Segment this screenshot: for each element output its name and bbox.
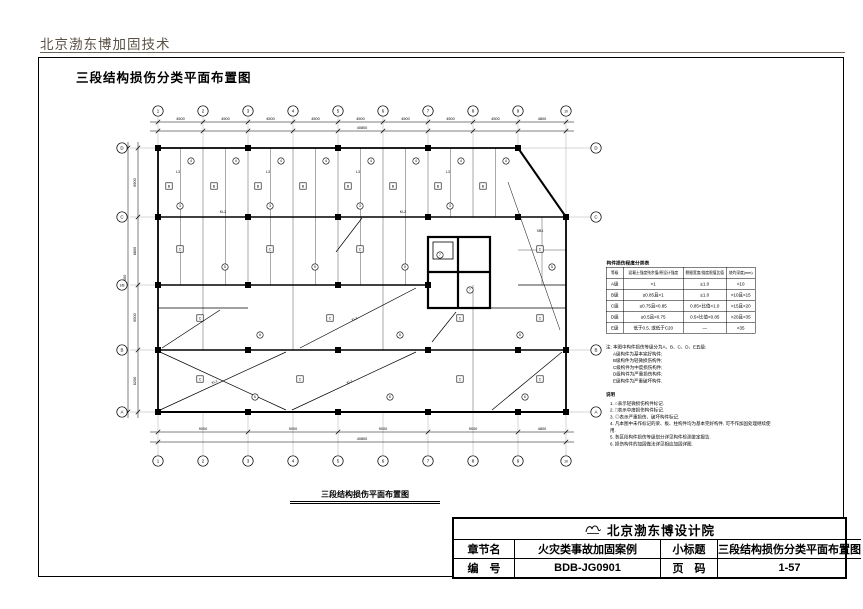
svg-text:4: 4: [460, 159, 462, 163]
svg-text:XL1: XL1: [346, 379, 353, 385]
damage-table-cell: >1: [623, 278, 683, 289]
damage-table-cell: E级: [606, 322, 623, 333]
svg-text:6200: 6200: [133, 377, 137, 385]
svg-text:4: 4: [235, 159, 237, 163]
svg-text:D: D: [594, 146, 597, 151]
svg-text:5: 5: [224, 265, 226, 269]
svg-text:4500: 4500: [356, 117, 364, 121]
svg-text:C: C: [269, 247, 272, 251]
damage-table-cell: >20且<35: [726, 311, 755, 322]
damage-table-row: D级≥0.5且<0.750.5<比值<0.85>20且<35: [606, 311, 755, 322]
svg-text:9000: 9000: [379, 427, 387, 431]
page-value: 1-57: [717, 558, 861, 577]
title-block-grid: 章节名 火灾类事故加固案例 小标题 三段结构损伤分类平面布置图 编 号 BDB-…: [454, 539, 845, 577]
number-label: 编 号: [454, 558, 514, 577]
svg-text:B: B: [121, 348, 124, 353]
svg-text:4: 4: [325, 159, 327, 163]
damage-table-cell: ≥0.5且<0.75: [623, 311, 683, 322]
sheet-title: 三段结构损伤分类平面布置图: [76, 67, 252, 86]
notes-block: 注: 本图中构件损伤等级分为A、B、C、D、E五级:A级构件为基本完好构件;B级…: [606, 344, 771, 448]
svg-text:5: 5: [551, 265, 553, 269]
svg-text:XB1: XB1: [537, 229, 544, 233]
svg-text:C: C: [329, 316, 332, 320]
note-line: B级构件为轻微损伤构件;: [606, 358, 771, 365]
svg-text:1/B: 1/B: [119, 284, 125, 288]
damage-classification-table-block: 构件损伤程度分类表 等级混凝土强度残余值/原设计强度裂缝宽度/挠度限值比值烧灼深…: [606, 259, 756, 334]
svg-text:4800: 4800: [538, 427, 546, 431]
svg-text:40800: 40800: [357, 126, 368, 130]
svg-text:4500: 4500: [401, 117, 409, 121]
company-name: 北京渤东博设计院: [607, 520, 715, 539]
damage-table-header-row: 等级混凝土强度残余值/原设计强度裂缝宽度/挠度限值比值烧灼深度(mm): [606, 267, 755, 278]
damage-table-header-cell: 等级: [606, 267, 623, 278]
svg-text:C: C: [539, 247, 542, 251]
svg-text:7: 7: [439, 253, 441, 257]
subtitle-label: 小标题: [660, 539, 717, 558]
svg-text:40800: 40800: [357, 437, 368, 441]
legend-title: 说明: [606, 392, 771, 399]
svg-text:3: 3: [269, 204, 271, 208]
svg-text:3: 3: [449, 204, 451, 208]
damage-table-cell: C级: [606, 300, 623, 311]
grade-notes: 注: 本图中构件损伤等级分为A、B、C、D、E五级:A级构件为基本完好构件;B级…: [606, 344, 771, 385]
svg-text:5: 5: [404, 265, 406, 269]
damage-table-header-cell: 烧灼深度(mm): [726, 267, 755, 278]
svg-text:6500: 6500: [133, 313, 137, 321]
legend-item: 6. 损伤构件的加固做法详见相应加固详图.: [606, 441, 771, 448]
svg-text:6800: 6800: [133, 247, 137, 255]
legend-item: 4. 凡本图中未作标记的梁、板、柱构件均为基本完好构件, 可不作加固处理继续使用…: [606, 421, 771, 435]
damage-table-cell: ≥1.0: [683, 289, 726, 300]
legend-items: 1. ○表示轻微损伤构件标记.2. □表示中度损伤构件标记.3. ◎表示严重损伤…: [606, 400, 771, 447]
damage-table-header-cell: 裂缝宽度/挠度限值比值: [683, 267, 726, 278]
svg-text:C: C: [299, 377, 302, 381]
svg-text:9000: 9000: [289, 427, 297, 431]
svg-text:4500: 4500: [221, 117, 229, 121]
drawing-sheet-page: 北京渤东博加固技术 三段结构损伤分类平面布置图 4500450045004500…: [0, 0, 863, 609]
damage-table-row: A级>1≥1.0<10: [606, 278, 755, 289]
title-block: 北京渤东博设计院 章节名 火灾类事故加固案例 小标题 三段结构损伤分类平面布置图…: [452, 517, 847, 579]
svg-text:4: 4: [190, 159, 192, 163]
svg-text:6: 6: [254, 395, 256, 399]
svg-text:10: 10: [564, 110, 568, 114]
svg-text:L3: L3: [446, 170, 450, 174]
damage-table-cell: ≥0.75且<0.85: [623, 300, 683, 311]
svg-text:L3: L3: [266, 170, 270, 174]
damage-table-cell: 0.85<比值<1.0: [683, 300, 726, 311]
svg-text:4: 4: [505, 159, 507, 163]
svg-text:B: B: [595, 348, 598, 353]
svg-text:4: 4: [280, 159, 282, 163]
damage-table-head: 等级混凝土强度残余值/原设计强度裂缝宽度/挠度限值比值烧灼深度(mm): [606, 267, 755, 278]
svg-text:D: D: [120, 146, 123, 151]
damage-table-row: C级≥0.75且<0.850.85<比值<1.0>15且<20: [606, 300, 755, 311]
plan-caption: 三段结构损伤平面布置图: [290, 489, 440, 504]
damage-table-cell: A级: [606, 278, 623, 289]
svg-text:XL1: XL1: [211, 379, 218, 385]
svg-text:4500: 4500: [266, 117, 274, 121]
damage-table-cell: B级: [606, 289, 623, 300]
svg-text:C: C: [179, 247, 182, 251]
legend-item: 3. ◎表示严重损伤、破坏构件标记.: [606, 414, 771, 421]
svg-text:A: A: [121, 410, 124, 415]
svg-text:C: C: [539, 316, 542, 320]
damage-table: 等级混凝土强度残余值/原设计强度裂缝宽度/挠度限值比值烧灼深度(mm) A级>1…: [606, 267, 756, 334]
svg-text:7: 7: [469, 288, 471, 292]
svg-text:L3: L3: [176, 170, 180, 174]
svg-text:4500: 4500: [176, 117, 184, 121]
legend-item: 1. ○表示轻微损伤构件标记.: [606, 400, 771, 407]
note-line: A级构件为基本完好构件;: [606, 351, 771, 358]
svg-text:6: 6: [519, 333, 521, 337]
svg-text:C: C: [199, 316, 202, 320]
svg-text:5: 5: [314, 265, 316, 269]
svg-text:3: 3: [179, 204, 181, 208]
svg-text:4500: 4500: [446, 117, 454, 121]
damage-table-cell: >10且<15: [726, 289, 755, 300]
damage-table-row: B级≥0.85且<1≥1.0>10且<15: [606, 289, 755, 300]
damage-table-title: 构件损伤程度分类表: [607, 259, 757, 266]
svg-text:9000: 9000: [199, 427, 207, 431]
note-line: 注: 本图中构件损伤等级分为A、B、C、D、E五级:: [606, 344, 771, 351]
svg-text:6: 6: [389, 395, 391, 399]
svg-text:3: 3: [359, 204, 361, 208]
svg-text:C: C: [459, 316, 462, 320]
damage-table-cell: >35: [726, 322, 755, 333]
svg-text:9000: 9000: [469, 427, 477, 431]
svg-text:C: C: [120, 215, 123, 220]
svg-text:C: C: [459, 377, 462, 381]
legend-item: 2. □表示中度损伤构件标记.: [606, 407, 771, 414]
damage-table-cell: 0.5<比值<0.85: [683, 311, 726, 322]
svg-text:KL2: KL2: [220, 210, 226, 214]
svg-text:A: A: [595, 410, 598, 415]
damage-table-body: A级>1≥1.0<10B级≥0.85且<1≥1.0>10且<15C级≥0.75且…: [606, 278, 755, 333]
svg-text:6: 6: [524, 395, 526, 399]
damage-table-header-cell: 混凝土强度残余值/原设计强度: [623, 267, 683, 278]
svg-text:6900: 6900: [133, 178, 137, 186]
legend-item: 5. 各区段构件损伤等级划分详见构件检测鉴定报告.: [606, 434, 771, 441]
svg-text:4: 4: [415, 159, 417, 163]
note-line: C级构件为中度损伤构件;: [606, 364, 771, 371]
number-value: BDB-JG0901: [514, 558, 660, 577]
damage-table-cell: ≥0.85且<1: [623, 289, 683, 300]
svg-text:4800: 4800: [538, 117, 546, 121]
svg-text:4500: 4500: [311, 117, 319, 121]
damage-table-row: E级低于0.5, 或低于C20—>35: [606, 322, 755, 333]
svg-text:C: C: [594, 215, 597, 220]
svg-text:10: 10: [564, 460, 568, 464]
svg-text:KL2: KL2: [400, 210, 406, 214]
damage-table-cell: >15且<20: [726, 300, 755, 311]
page-label: 页 码: [660, 558, 717, 577]
damage-table-cell: ≥1.0: [683, 278, 726, 289]
header-rule: [40, 52, 845, 53]
damage-table-cell: —: [683, 322, 726, 333]
svg-text:C: C: [359, 247, 362, 251]
note-line: D级构件为严重损伤构件;: [606, 371, 771, 378]
note-line: E级构件为严重破坏构件.: [606, 378, 771, 385]
damage-table-cell: D级: [606, 311, 623, 322]
svg-text:L3: L3: [356, 170, 360, 174]
svg-text:4: 4: [370, 159, 372, 163]
floor-plan-drawing: 4500450045004500450045004500450048004080…: [95, 100, 625, 510]
svg-text:6: 6: [259, 333, 261, 337]
design-institute-logo-icon: [584, 523, 602, 535]
svg-text:C: C: [539, 377, 542, 381]
svg-text:4500: 4500: [491, 117, 499, 121]
chapter-value: 火灾类事故加固案例: [514, 539, 660, 558]
title-block-company-row: 北京渤东博设计院: [454, 519, 845, 539]
subtitle-value: 三段结构损伤分类平面布置图: [717, 539, 861, 558]
svg-text:C: C: [199, 377, 202, 381]
svg-text:6: 6: [399, 333, 401, 337]
document-header: 北京渤东博加固技术: [40, 33, 171, 53]
damage-table-cell: 低于0.5, 或低于C20: [623, 322, 683, 333]
damage-table-cell: <10: [726, 278, 755, 289]
svg-text:XL1: XL1: [351, 316, 359, 322]
chapter-label: 章节名: [454, 539, 514, 558]
